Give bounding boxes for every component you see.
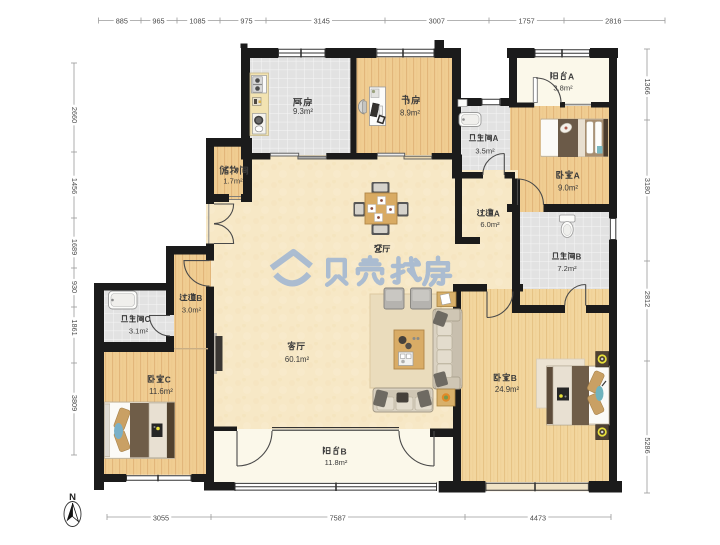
svg-text:930: 930 [70,281,79,293]
svg-text:A: A [494,210,500,219]
svg-text:885: 885 [116,16,128,25]
svg-text:3055: 3055 [153,513,169,522]
svg-text:3.1m²: 3.1m² [129,327,149,336]
svg-text:8.9m²: 8.9m² [400,108,420,117]
svg-text:C: C [165,375,171,385]
svg-text:3.0m²: 3.0m² [182,305,202,314]
svg-text:1366: 1366 [643,78,652,94]
svg-text:5286: 5286 [643,437,652,453]
svg-text:4473: 4473 [530,513,546,522]
svg-text:1456: 1456 [70,178,79,194]
svg-text:7.2m²: 7.2m² [557,264,577,273]
svg-text:B: B [341,446,347,456]
svg-text:975: 975 [240,16,252,25]
svg-text:2660: 2660 [70,107,79,123]
svg-text:965: 965 [152,16,164,25]
svg-text:1689: 1689 [70,239,79,255]
svg-text:24.9m²: 24.9m² [495,385,520,394]
svg-text:1757: 1757 [518,16,534,25]
svg-text:7587: 7587 [330,513,346,522]
svg-text:1.7m²: 1.7m² [223,177,243,186]
svg-text:9.3m²: 9.3m² [293,107,313,116]
svg-text:3.5m²: 3.5m² [475,147,495,156]
svg-text:1861: 1861 [70,319,79,335]
svg-text:9.0m²: 9.0m² [558,184,578,193]
svg-text:A: A [493,134,499,143]
svg-text:A: A [568,72,574,82]
svg-text:11.8m²: 11.8m² [325,458,348,467]
svg-text:2816: 2816 [605,16,621,25]
svg-text:3007: 3007 [429,16,445,25]
svg-text:6.0m²: 6.0m² [480,220,500,229]
svg-text:3145: 3145 [314,16,330,25]
svg-text:A: A [574,171,580,181]
svg-text:B: B [576,252,582,261]
svg-text:11.6m²: 11.6m² [149,387,173,396]
svg-text:2812: 2812 [643,291,652,307]
svg-text:60.1m²: 60.1m² [285,355,310,364]
svg-text:3180: 3180 [643,178,652,194]
svg-text:C: C [145,315,151,324]
svg-text:B: B [196,294,202,303]
svg-text:1085: 1085 [189,16,205,25]
svg-text:3.8m²: 3.8m² [553,83,573,92]
svg-text:B: B [511,373,517,383]
svg-text:3809: 3809 [70,395,79,411]
